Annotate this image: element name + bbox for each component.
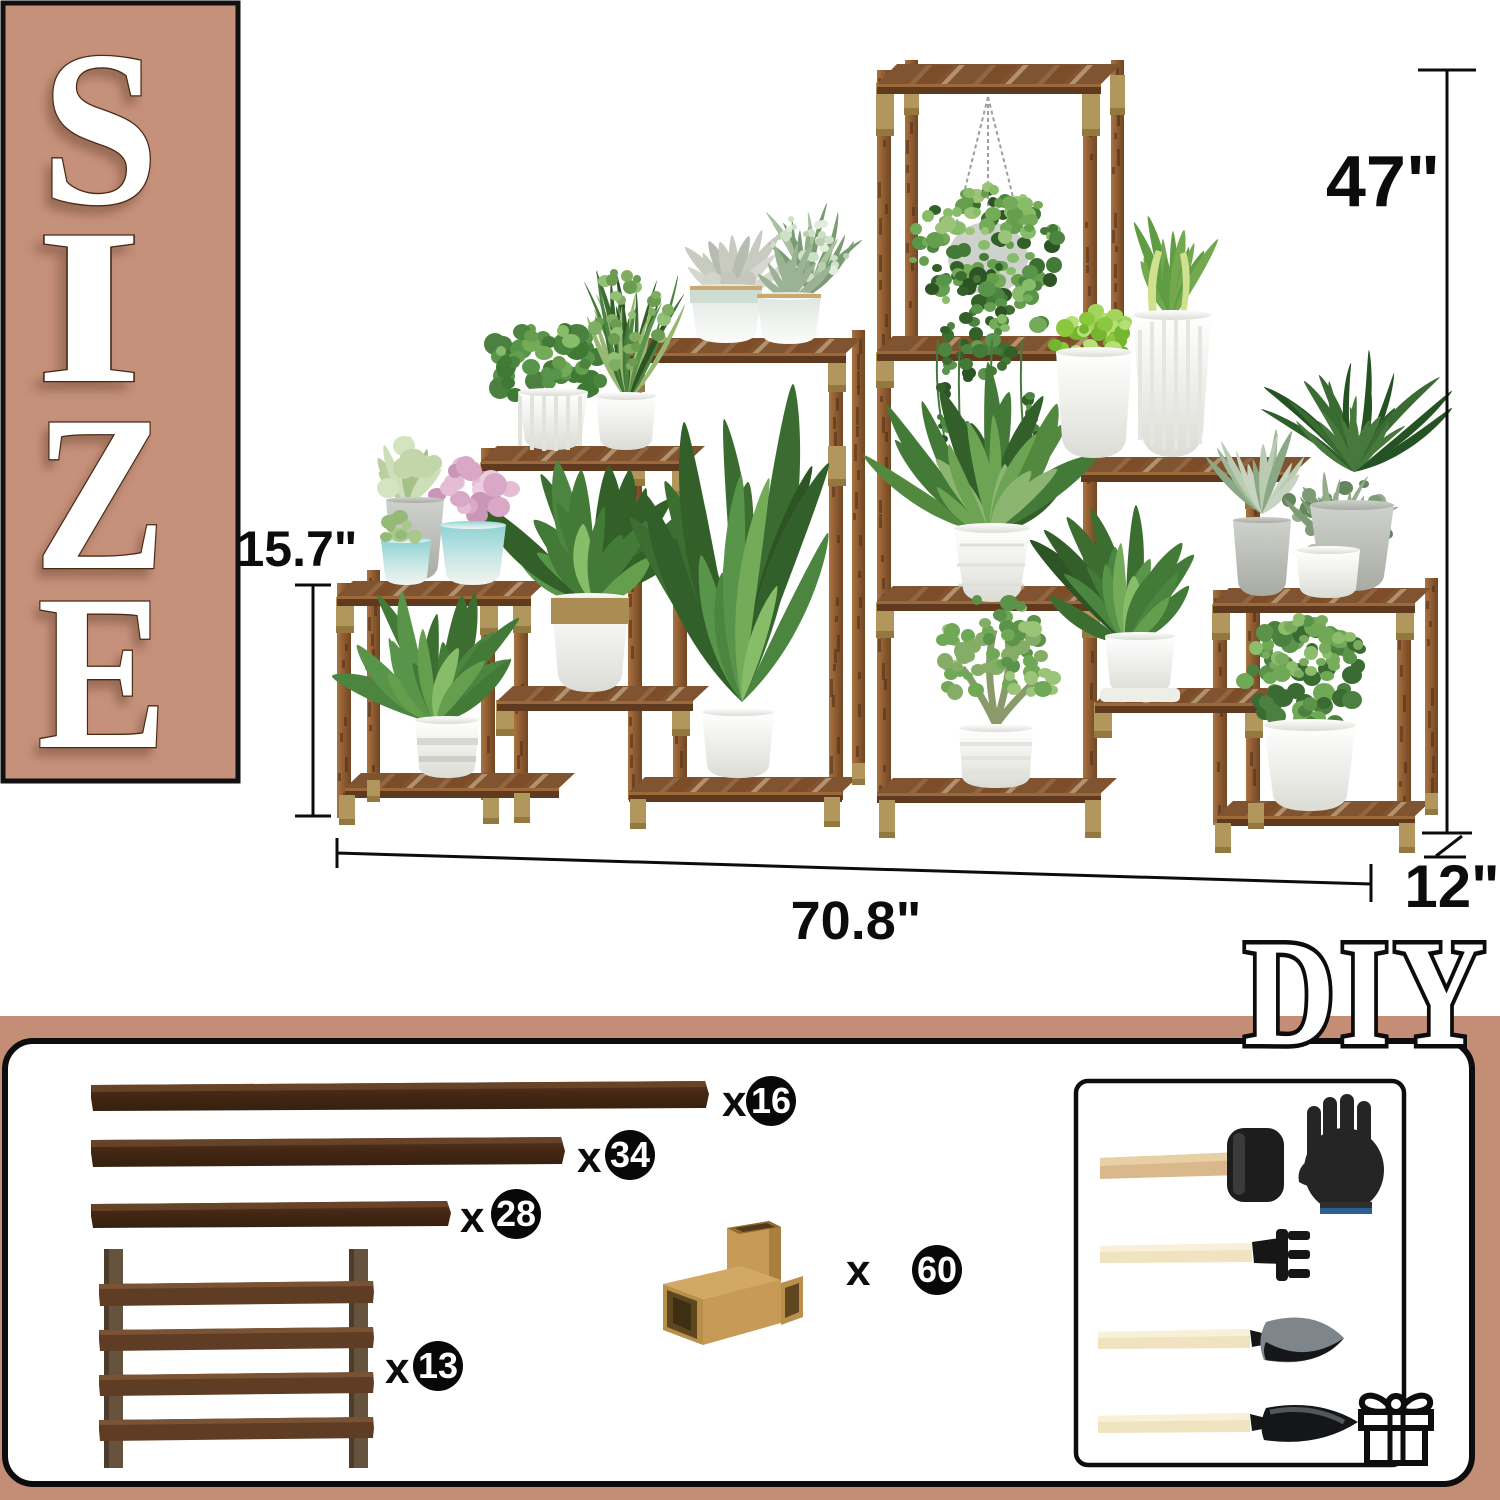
svg-text:28: 28 — [496, 1193, 536, 1234]
svg-text:70.8": 70.8" — [791, 891, 922, 951]
svg-text:x: x — [577, 1133, 602, 1182]
svg-text:60: 60 — [917, 1249, 957, 1290]
svg-text:47": 47" — [1326, 142, 1440, 222]
svg-text:34: 34 — [610, 1134, 650, 1175]
svg-text:x: x — [385, 1344, 410, 1393]
svg-text:DIY: DIY — [1244, 910, 1490, 1078]
svg-text:x: x — [846, 1246, 871, 1295]
svg-text:E: E — [37, 551, 167, 796]
svg-text:16: 16 — [751, 1080, 791, 1121]
svg-text:x: x — [460, 1193, 485, 1242]
svg-text:x: x — [722, 1077, 747, 1126]
svg-text:15.7": 15.7" — [236, 521, 357, 577]
svg-text:13: 13 — [418, 1345, 458, 1386]
